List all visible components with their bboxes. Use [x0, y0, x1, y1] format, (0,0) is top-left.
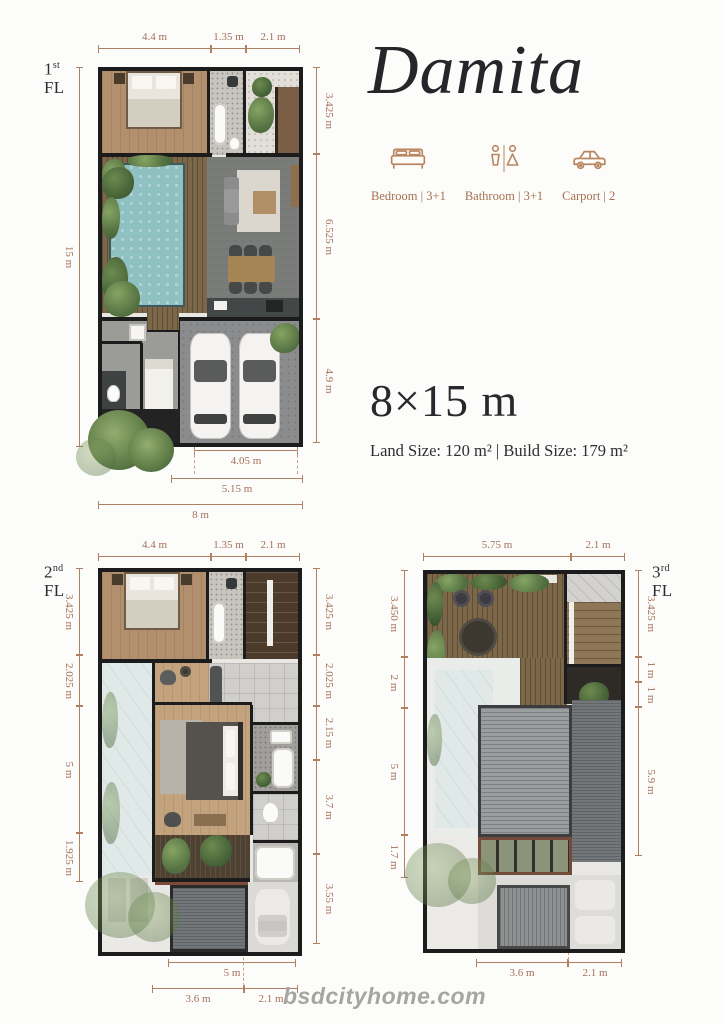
land-build-size: Land Size: 120 m² | Build Size: 179 m²	[370, 441, 628, 461]
dim-fl3-right-2: 1 m	[638, 682, 639, 707]
dim-fl1-right-1: 6.525 m	[316, 154, 317, 319]
dim-fl3-right-1: 1 m	[638, 657, 639, 682]
floor-number: 3	[652, 563, 661, 582]
spec-carport-label: Carport | 2	[562, 189, 615, 204]
bed	[124, 572, 180, 630]
project-title: Damita	[368, 36, 584, 106]
dim-fl3-top-0: 5.75 m	[423, 556, 571, 557]
rooftop-deck	[520, 658, 567, 708]
nightstand	[112, 574, 123, 585]
nightstand	[114, 73, 125, 84]
toilet	[107, 385, 120, 402]
dim-fl3-right-0: 3.425 m	[638, 570, 639, 657]
toilet	[229, 137, 240, 150]
dim-fl2-top-1: 1.35 m	[211, 556, 246, 557]
floor-ordinal: st	[53, 60, 60, 71]
lot-size: 8×15 m	[370, 374, 518, 427]
dim-fl1-bottom-2: 5.15 m	[171, 478, 303, 479]
armchair	[160, 670, 176, 685]
plant	[248, 97, 274, 133]
dim-fl2-bottom-1: 3.6 m	[152, 988, 244, 989]
wood-canopy	[147, 310, 179, 330]
plant	[128, 155, 172, 167]
watermark: bsdcityhome.com	[283, 983, 486, 1010]
dim-fl1-bottom-1: 4.05 m	[194, 450, 298, 451]
pillow	[226, 730, 235, 757]
spec-bathroom: Bathroom | 3+1	[465, 144, 543, 204]
washbasin	[270, 730, 292, 744]
dim-fl1-bottom-3: 8 m	[98, 504, 303, 505]
floor-ordinal: rd	[661, 563, 670, 574]
tree	[76, 438, 116, 476]
dim-fl2-right-2: 2.15 m	[316, 706, 317, 760]
plant	[102, 167, 134, 199]
dim-fl1-left-0: 15 m	[79, 67, 80, 447]
washbasin	[227, 76, 238, 87]
floor-number: 2	[44, 563, 53, 582]
console-table	[291, 165, 299, 207]
spec-row: Bedroom | 3+1 Bathroom | 3+1	[371, 144, 615, 204]
armchair	[164, 812, 181, 827]
dim-fl3-left-1: 2 m	[404, 657, 405, 708]
dim-fl2-top-2: 2.1 m	[246, 556, 300, 557]
plant	[270, 323, 300, 353]
dim-guide	[297, 444, 298, 474]
bathtub	[255, 846, 295, 880]
bed-icon	[389, 144, 427, 179]
sofa	[224, 177, 239, 225]
dim-fl3-left-2: 5 m	[404, 708, 405, 835]
dim-fl1-top-2: 2.1 m	[246, 48, 300, 49]
roof-panel-lower	[497, 885, 570, 949]
floor-abbrev: FL	[44, 581, 64, 600]
stair-divider	[267, 580, 273, 646]
stool	[477, 590, 494, 607]
headboard	[238, 722, 243, 800]
floor-abbrev: FL	[44, 78, 64, 97]
roof-panel-right	[572, 700, 621, 862]
dim-fl2-right-0: 3.425 m	[316, 568, 317, 655]
dim-fl1-right-0: 3.425 m	[316, 67, 317, 154]
car	[190, 333, 231, 439]
floor-ordinal: nd	[53, 563, 64, 574]
dim-fl3-bottom-1: 2.1 m	[568, 962, 622, 963]
plant	[104, 281, 140, 317]
kitchen-sink	[214, 301, 227, 310]
dim-fl3-right-3: 5.9 m	[638, 707, 639, 856]
stove	[266, 300, 283, 312]
toilet	[262, 802, 279, 823]
plant	[256, 772, 271, 787]
floor-label-1st: 1st FL	[44, 60, 64, 98]
dim-fl1-right-2: 4.9 m	[316, 319, 317, 443]
nightstand	[181, 574, 192, 585]
spec-bedroom: Bedroom | 3+1	[371, 144, 446, 204]
plant	[102, 197, 120, 239]
plant	[427, 582, 443, 626]
dim-fl2-right-3: 3.7 m	[316, 760, 317, 854]
carport-below	[575, 916, 615, 944]
floorplan-poster: 1st FL 4.4 m 1.35 m 2.1 m 15 m 3.425 m 6…	[0, 0, 724, 1024]
plant	[471, 574, 507, 590]
plant	[427, 714, 442, 766]
dim-fl2-left-1: 2.025 m	[79, 655, 80, 706]
dim-fl2-right-4: 3.55 m	[316, 854, 317, 944]
stair-landing-top	[567, 574, 621, 602]
pillow	[226, 763, 235, 790]
plant	[252, 77, 272, 97]
spec-bedroom-label: Bedroom | 3+1	[371, 189, 446, 204]
carport-icon	[570, 144, 608, 179]
plant	[509, 574, 549, 592]
roof-below	[170, 885, 248, 952]
dim-fl2-left-0: 3.425 m	[79, 568, 80, 655]
side-table	[180, 666, 191, 677]
dim-fl1-top-0: 4.4 m	[98, 48, 211, 49]
plant	[200, 835, 232, 867]
bathroom-icon	[486, 144, 522, 179]
dim-fl2-left-3: 1.925 m	[79, 833, 80, 882]
tree	[128, 428, 174, 472]
garden-wall	[275, 87, 299, 155]
spec-carport: Carport | 2	[562, 144, 615, 204]
dim-fl2-right-1: 2.025 m	[316, 655, 317, 706]
bench	[194, 814, 226, 826]
floor-label-2nd: 2nd FL	[44, 563, 64, 601]
coffee-table	[253, 191, 276, 214]
dim-fl2-top-0: 4.4 m	[98, 556, 211, 557]
tree	[448, 858, 496, 904]
dim-fl3-top-1: 2.1 m	[571, 556, 625, 557]
plant	[102, 782, 120, 844]
dim-fl3-left-0: 3.450 m	[404, 570, 405, 657]
carport-below	[575, 880, 615, 910]
staircase	[567, 602, 621, 664]
plant	[102, 692, 118, 748]
dining-table	[228, 256, 275, 282]
spec-bathroom-label: Bathroom | 3+1	[465, 189, 543, 204]
dim-fl1-top-1: 1.35 m	[211, 48, 246, 49]
maid-bed	[145, 359, 173, 411]
dim-fl3-bottom-0: 3.6 m	[476, 962, 568, 963]
bathtub	[212, 602, 226, 644]
floor-number: 1	[44, 60, 53, 79]
car-below	[254, 888, 291, 946]
plant	[162, 838, 190, 874]
floorplan-1st	[98, 67, 303, 447]
bathtub	[272, 748, 294, 788]
roof-panel-main	[478, 705, 572, 837]
round-table	[459, 618, 497, 656]
nightstand	[183, 73, 194, 84]
dim-fl2-bottom-0: 5 m	[168, 962, 296, 963]
washbasin	[226, 578, 237, 589]
dim-guide	[194, 444, 195, 474]
dim-fl2-left-2: 5 m	[79, 706, 80, 833]
bathtub	[213, 103, 227, 145]
stool	[453, 590, 470, 607]
washing-machine	[129, 324, 146, 341]
bed	[126, 71, 182, 129]
stair-divider	[569, 602, 574, 664]
tree	[128, 892, 180, 942]
